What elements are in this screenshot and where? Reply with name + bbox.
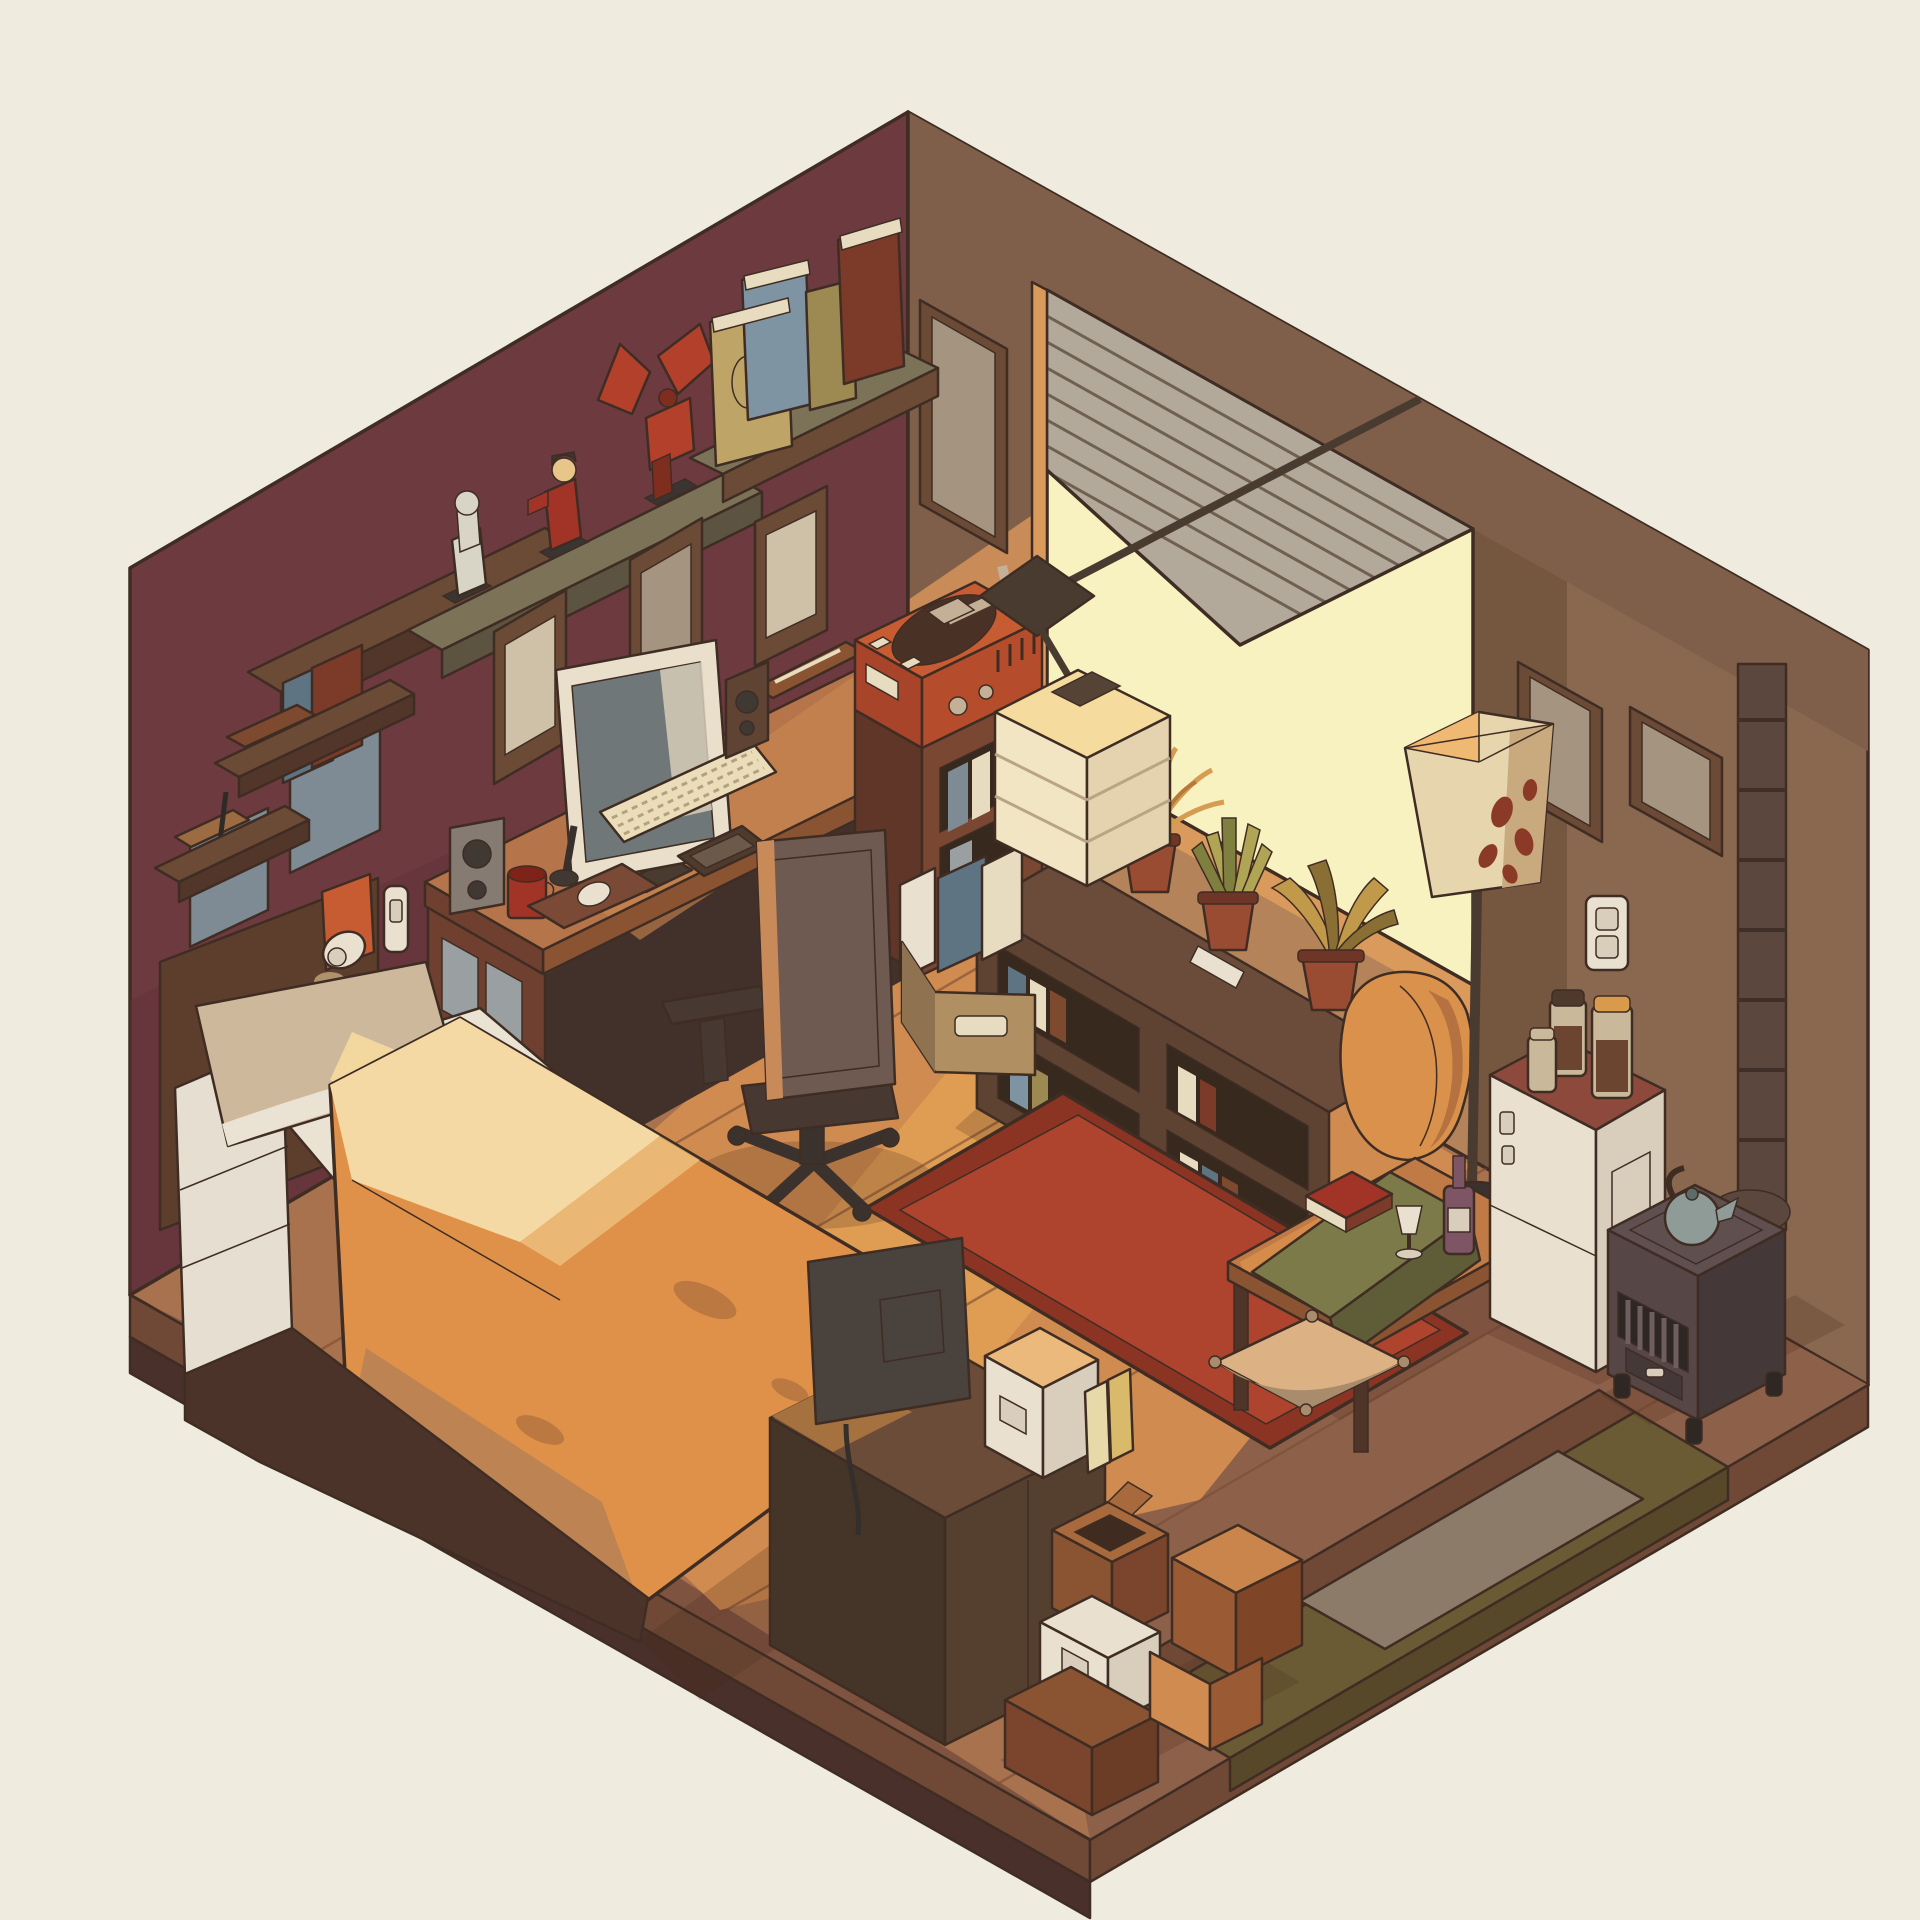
lamp-pole <box>1472 890 1477 1190</box>
jar <box>1528 1036 1556 1092</box>
tv-panel <box>808 1238 970 1424</box>
caster <box>881 1129 899 1147</box>
fridge-handle <box>1502 1146 1514 1164</box>
knob <box>979 685 993 699</box>
switch-button <box>1596 908 1618 930</box>
jar-lid <box>1530 1028 1554 1040</box>
tassel <box>1398 1356 1410 1368</box>
cream-folder <box>982 846 1022 960</box>
pot-rim <box>1198 892 1258 904</box>
tassel <box>1306 1310 1318 1322</box>
tassel <box>1300 1404 1312 1416</box>
white-storage-box <box>985 1328 1098 1478</box>
right-speaker <box>726 662 768 758</box>
terracotta-pot <box>1202 898 1254 950</box>
bottle-label <box>1448 1208 1470 1232</box>
sconce-bulb <box>328 948 346 966</box>
stove-leg <box>1614 1374 1630 1398</box>
knob <box>949 697 967 715</box>
chimney-pipe <box>1738 664 1786 1230</box>
pot-rim <box>1298 950 1364 962</box>
kettle-lid <box>1686 1188 1698 1200</box>
switch-button <box>390 900 402 922</box>
switch-button <box>1596 936 1618 958</box>
illustration-canvas <box>0 0 1920 1920</box>
jar-lid <box>1552 990 1584 1006</box>
fridge-handle <box>1500 1112 1514 1134</box>
microphone-base <box>550 870 578 886</box>
caster <box>728 1127 746 1145</box>
throw-blanket <box>1340 972 1472 1160</box>
book <box>1085 1381 1110 1473</box>
drawer-handle <box>1646 1368 1664 1377</box>
tassel <box>1209 1356 1221 1368</box>
left-speaker <box>450 818 504 914</box>
box-label <box>955 1016 1007 1036</box>
book <box>1108 1369 1133 1461</box>
stove-leg <box>1766 1372 1782 1396</box>
stove-leg <box>1686 1418 1702 1444</box>
jar-lid <box>1594 996 1630 1012</box>
light-switch <box>1586 896 1628 970</box>
armrest-support <box>700 1018 728 1084</box>
slate-folder <box>938 856 986 972</box>
caster <box>853 1203 871 1221</box>
table-leg <box>1234 1278 1248 1410</box>
picture-frame-inner <box>932 317 995 537</box>
